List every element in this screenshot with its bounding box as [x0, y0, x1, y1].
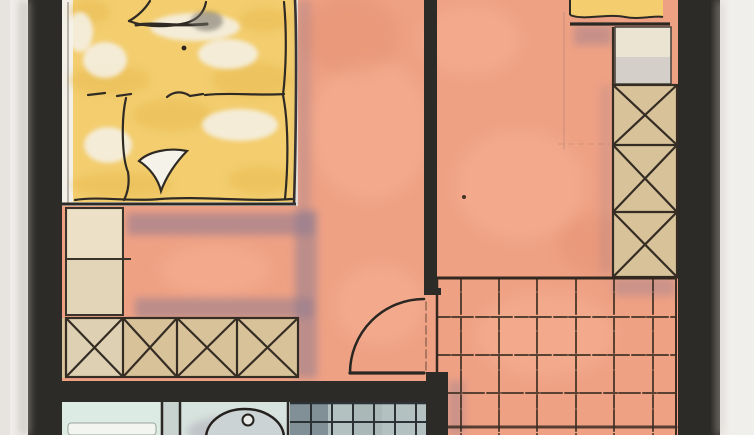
sketch-dot — [182, 46, 187, 51]
wall-hall-bath-divider — [426, 372, 448, 435]
shower-mid-patch — [352, 402, 382, 435]
floor-plan-scan — [0, 0, 754, 435]
wall-central-end-cap — [424, 288, 441, 295]
closet-column — [66, 208, 131, 315]
wall-right — [678, 0, 720, 435]
dresser-top — [615, 27, 671, 57]
scan-shadow-right — [716, 0, 724, 435]
shower-dark-patch — [290, 402, 328, 435]
paper-right-margin — [720, 0, 754, 435]
wardrobe-row — [62, 318, 298, 378]
scan-shadow-left — [18, 0, 30, 435]
floor-plan-svg — [0, 0, 754, 435]
ink-speck — [462, 195, 466, 199]
bathtub-inner — [68, 423, 156, 435]
pillow-shadow-smudge — [191, 11, 223, 31]
wall-left — [28, 0, 62, 435]
washbasin-drain — [243, 415, 254, 426]
closet-upper-unit — [68, 210, 121, 258]
dresser-bottom — [615, 57, 671, 84]
partition-fill — [162, 402, 180, 435]
wall-bottom — [28, 381, 448, 402]
bathroom — [62, 402, 426, 435]
paper-edge — [0, 0, 10, 435]
bedroom — [62, 0, 298, 206]
wall-central — [424, 0, 437, 294]
